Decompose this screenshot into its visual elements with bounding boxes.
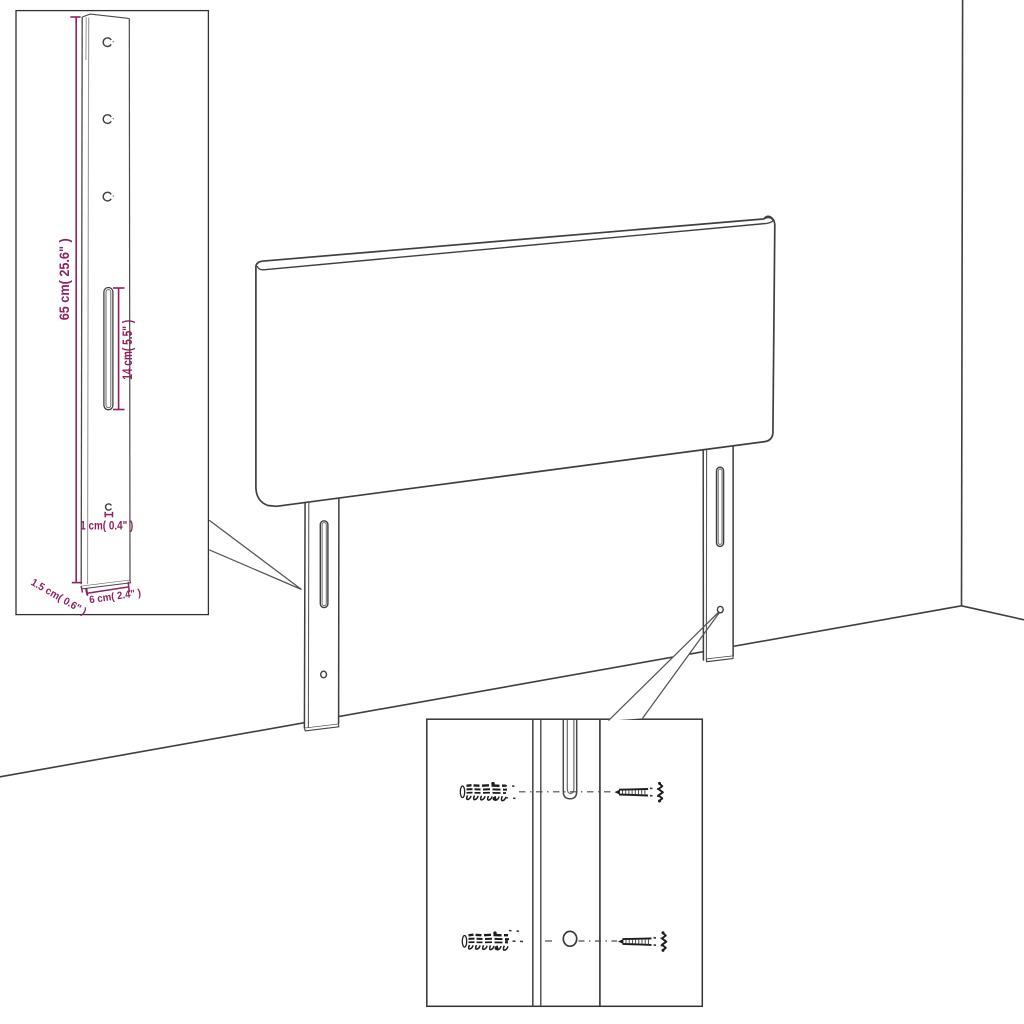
svg-text:14 cm( 5.5" ): 14 cm( 5.5" ) [120, 320, 135, 380]
svg-text:65 cm( 25.6" ): 65 cm( 25.6" ) [57, 238, 72, 320]
svg-text:1 cm( 0.4" ): 1 cm( 0.4" ) [80, 519, 133, 533]
